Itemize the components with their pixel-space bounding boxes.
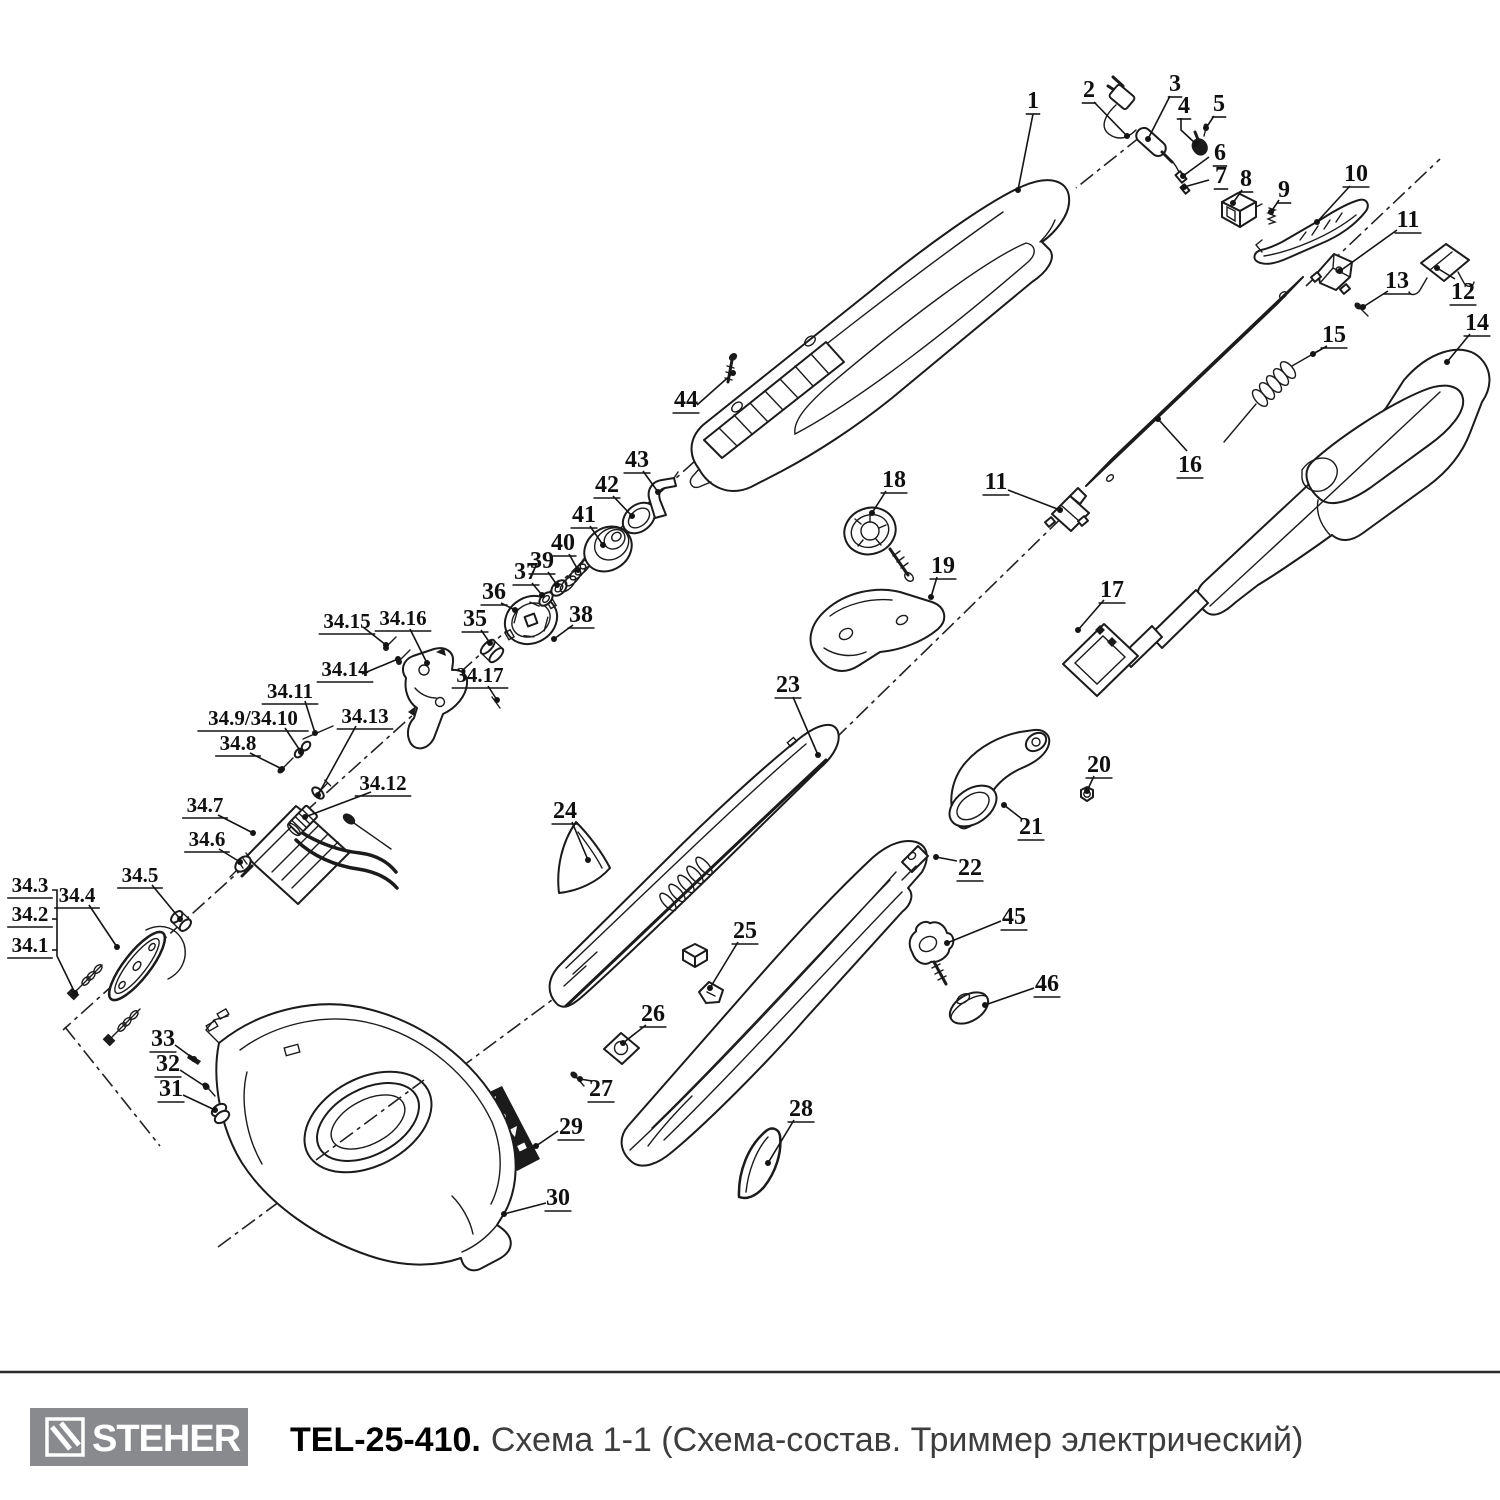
part-number-text: 34.3 xyxy=(12,873,49,897)
leader-dot xyxy=(551,636,557,642)
part-label-13: 13 xyxy=(1360,268,1410,310)
part-26-square-washer xyxy=(604,1033,639,1064)
leader-dot xyxy=(1001,802,1007,808)
leader-dot xyxy=(302,814,308,820)
part-label-25: 25 xyxy=(707,918,758,991)
leader-dot xyxy=(424,660,430,666)
part-label-7: 7 xyxy=(1181,163,1228,190)
part-number-text: 23 xyxy=(776,672,800,698)
part-number-text: 45 xyxy=(1002,904,1026,930)
part-number-text: 34.4 xyxy=(59,883,96,907)
part-number-text: 11 xyxy=(1397,207,1420,233)
part-number-text: 43 xyxy=(625,447,649,473)
leader-dot xyxy=(494,697,500,703)
part-label-27: 27 xyxy=(577,1076,614,1102)
part-30-guard xyxy=(206,1004,516,1270)
part-number-text: 34.12 xyxy=(359,771,406,795)
leader-dot xyxy=(315,792,321,798)
part-label-43: 43 xyxy=(624,447,661,495)
part-number-text: 40 xyxy=(551,530,575,556)
leader-dot xyxy=(1203,125,1209,131)
part-label-26: 26 xyxy=(620,1001,666,1046)
leader-dot xyxy=(72,990,78,996)
part-number-text: 22 xyxy=(958,855,982,881)
part-24-deflector-blade xyxy=(558,822,610,893)
part-number-text: 38 xyxy=(569,602,593,628)
part-label-18: 18 xyxy=(869,467,907,516)
leader-dot xyxy=(629,513,635,519)
part-25-clamp-nut xyxy=(683,944,723,1003)
leader-dot xyxy=(1337,268,1343,274)
part-15-spring xyxy=(1224,351,1318,442)
title-model: TEL-25-410. xyxy=(290,1421,481,1459)
leader-dot xyxy=(512,607,518,613)
part-label-29: 29 xyxy=(533,1114,584,1149)
part-number-text: 26 xyxy=(641,1001,665,1027)
leader-dot xyxy=(237,859,243,865)
part-number-text: 34.9/34.10 xyxy=(208,706,298,730)
leader-dot xyxy=(928,594,934,600)
part-number-text: 29 xyxy=(559,1114,583,1140)
part-number-text: 30 xyxy=(546,1185,570,1211)
leader-dot xyxy=(1124,133,1130,139)
leader-dot xyxy=(1268,209,1274,215)
part-number-text: 32 xyxy=(156,1051,180,1077)
part-number-text: 34.17 xyxy=(456,663,503,687)
part-number-text: 27 xyxy=(589,1076,613,1102)
part-label-45: 45 xyxy=(944,904,1027,946)
part-number-text: 11 xyxy=(985,469,1008,495)
leader-dot xyxy=(577,1076,583,1082)
leader-dot xyxy=(203,1084,209,1090)
part-number-text: 10 xyxy=(1344,161,1368,187)
part-1-motor-housing-top xyxy=(690,180,1069,491)
leader-dot xyxy=(1193,141,1199,147)
leader-dot xyxy=(585,857,591,863)
part-number-text: 2 xyxy=(1083,77,1095,103)
leader-dot xyxy=(1057,507,1063,513)
leader-dot xyxy=(177,916,183,922)
leader-dot xyxy=(487,640,493,646)
part-number-text: 34.13 xyxy=(341,704,388,728)
part-number-text: 12 xyxy=(1451,279,1475,305)
leader-dot xyxy=(944,940,950,946)
part-number-text: 25 xyxy=(733,918,757,944)
leader-dot xyxy=(655,489,661,495)
leader-dot xyxy=(250,830,256,836)
part-number-text: 4 xyxy=(1178,93,1190,119)
leader-dot xyxy=(191,1056,197,1062)
brand-name: STEHER xyxy=(92,1418,241,1460)
part-number-text: 34.6 xyxy=(189,827,226,851)
part-label-34.1: 34.1 xyxy=(7,933,57,958)
part-number-text: 35 xyxy=(463,606,487,632)
leader-dot xyxy=(1084,788,1090,794)
part-number-text: 34.14 xyxy=(321,657,369,681)
leader-dot xyxy=(298,749,304,755)
leader-dot xyxy=(539,592,545,598)
part-number-text: 33 xyxy=(151,1026,175,1052)
part-number-text: 19 xyxy=(931,553,955,579)
part-label-19: 19 xyxy=(928,553,956,600)
part-8-switch xyxy=(1222,193,1262,227)
part-number-text: 44 xyxy=(674,387,698,413)
leader-dot xyxy=(620,1040,626,1046)
part-number-text: 15 xyxy=(1322,322,1346,348)
part-43-clip xyxy=(649,472,678,518)
leader-dot xyxy=(279,766,285,772)
part-number-text: 34.1 xyxy=(12,933,49,957)
leader-dot xyxy=(383,642,389,648)
leader-dot xyxy=(933,854,939,860)
leader-dot xyxy=(575,567,581,573)
leader-dot xyxy=(1310,351,1316,357)
leader-dot xyxy=(1145,136,1151,142)
part-11-shaft-clamp-lower xyxy=(1045,488,1089,531)
part-number-text: 21 xyxy=(1019,814,1043,840)
leader-dot xyxy=(1155,416,1161,422)
leader-dot xyxy=(869,510,875,516)
part-28-deflector xyxy=(739,1129,780,1198)
part-number-text: 42 xyxy=(595,472,619,498)
part-number-text: 31 xyxy=(159,1076,183,1102)
part-label-46: 46 xyxy=(982,971,1060,1008)
leader-dot xyxy=(554,582,560,588)
part-label-38: 38 xyxy=(551,602,594,642)
part-label-1: 1 xyxy=(1015,88,1040,193)
leader-dot xyxy=(815,752,821,758)
part-number-text: 5 xyxy=(1213,91,1225,117)
part-label-40: 40 xyxy=(550,530,581,573)
part-label-11: 11 xyxy=(983,469,1063,513)
part-number-text: 34.16 xyxy=(379,606,426,630)
part-label-21: 21 xyxy=(1001,802,1044,840)
leader-dot xyxy=(1444,359,1450,365)
leader-dot xyxy=(1015,187,1021,193)
part-number-text: 34.5 xyxy=(122,863,159,887)
part-number-text: 36 xyxy=(482,579,506,605)
leader-dot xyxy=(600,542,606,548)
leader-dot xyxy=(312,730,318,736)
exploded-parts-diagram: 1234567891011121314151617181119202122232… xyxy=(0,0,1500,1500)
part-number-text: 34.2 xyxy=(12,902,49,926)
leader-dot xyxy=(1180,173,1186,179)
part-label-34.14: 34.14 xyxy=(317,656,401,682)
leader-dot xyxy=(501,1211,507,1217)
leader-dot xyxy=(212,1107,218,1113)
leader-dot xyxy=(1360,304,1366,310)
part-label-34.4: 34.4 xyxy=(54,883,120,950)
leader-dot xyxy=(765,1160,771,1166)
part-number-text: 34.7 xyxy=(187,793,224,817)
part-number-text: 20 xyxy=(1087,752,1111,778)
part-number-text: 17 xyxy=(1100,577,1124,603)
part-18-wing-knob xyxy=(838,500,915,583)
title-subtitle: Схема 1-1 (Схема-состав. Триммер электри… xyxy=(491,1421,1303,1459)
part-number-text: 34.15 xyxy=(323,609,370,633)
leader-dot xyxy=(707,985,713,991)
part-label-35: 35 xyxy=(462,606,493,646)
part-number-text: 28 xyxy=(789,1096,813,1122)
leader-dot xyxy=(730,370,736,376)
part-11-shaft-clamp-upper xyxy=(1311,254,1352,294)
page-title: TEL-25-410.Схема 1-1 (Схема-состав. Трим… xyxy=(290,1421,1303,1459)
leader-dot xyxy=(1434,265,1440,271)
leader-dot xyxy=(1075,627,1081,633)
leader-dot xyxy=(1230,200,1236,206)
part-number-text: 18 xyxy=(882,467,906,493)
part-number-text: 8 xyxy=(1240,166,1252,192)
part-45-clamp-knob xyxy=(901,913,959,984)
part-label-9: 9 xyxy=(1268,177,1291,215)
part-label-17: 17 xyxy=(1075,577,1125,633)
leader-dot xyxy=(533,1143,539,1149)
part-label-34.6: 34.6 xyxy=(184,827,243,865)
part-17-end-cap xyxy=(1063,624,1138,696)
leader-dot xyxy=(1314,219,1320,225)
part-label-16: 16 xyxy=(1155,416,1203,478)
part-label-20: 20 xyxy=(1084,752,1112,794)
part-label-4: 4 xyxy=(1177,93,1199,147)
part-number-text: 14 xyxy=(1465,310,1489,336)
leader-dot xyxy=(395,656,401,662)
part-label-22: 22 xyxy=(933,854,983,881)
part-label-42: 42 xyxy=(594,472,635,519)
leader-dot xyxy=(1181,184,1187,190)
part-number-text: 34.11 xyxy=(267,679,313,703)
part-number-text: 24 xyxy=(553,798,577,824)
part-number-text: 7 xyxy=(1215,163,1227,189)
part-number-text: 46 xyxy=(1035,971,1059,997)
part-label-15: 15 xyxy=(1310,322,1347,357)
leader-dot xyxy=(114,944,120,950)
part-number-text: 1 xyxy=(1027,88,1039,114)
part-19-handle-bracket xyxy=(811,590,945,671)
part-number-text: 34.8 xyxy=(220,731,257,755)
part-label-34.8: 34.8 xyxy=(215,731,285,772)
part-34-4-flange-disc xyxy=(101,925,185,1007)
part-label-34.5: 34.5 xyxy=(117,863,183,922)
part-number-text: 9 xyxy=(1278,177,1290,203)
part-label-31: 31 xyxy=(158,1076,218,1113)
part-number-text: 13 xyxy=(1385,268,1409,294)
part-number-text: 41 xyxy=(572,502,596,528)
part-number-text: 16 xyxy=(1178,452,1202,478)
part-label-34.2: 34.2 xyxy=(7,902,57,927)
footer: STEHER TEL-25-410.Схема 1-1 (Схема-соста… xyxy=(0,1372,1500,1466)
leader-dot xyxy=(982,1002,988,1008)
